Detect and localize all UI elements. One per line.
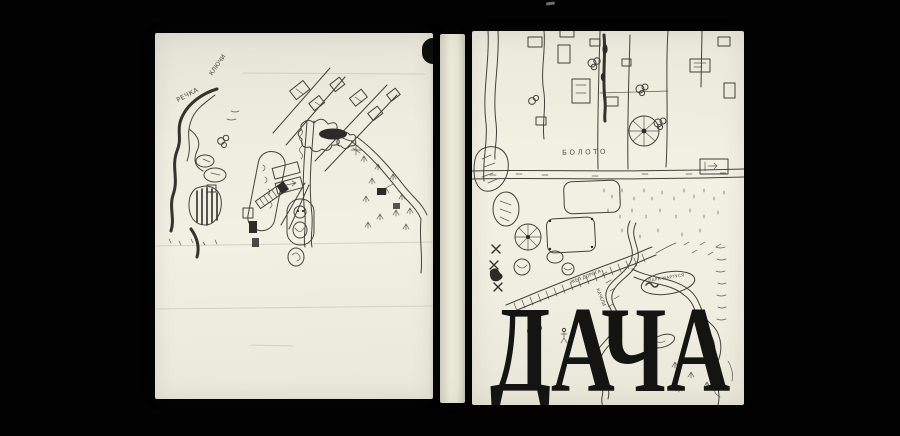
book-title: ДАЧА xyxy=(490,288,730,405)
book-cover-photo: РЕЧКА КЛЮЧИ xyxy=(0,0,900,436)
front-cover-panel: БОЛОТО ПАРК МАРТУСЯ ЖЕЛ ДОРОГА КАЧЕЛИ ДА… xyxy=(472,31,744,405)
dust-speck xyxy=(546,1,555,5)
map-label-swamp: БОЛОТО xyxy=(562,148,608,157)
back-cover-panel: РЕЧКА КЛЮЧИ xyxy=(155,33,433,399)
spine-panel xyxy=(440,34,465,403)
page-edge-notch xyxy=(422,38,433,64)
